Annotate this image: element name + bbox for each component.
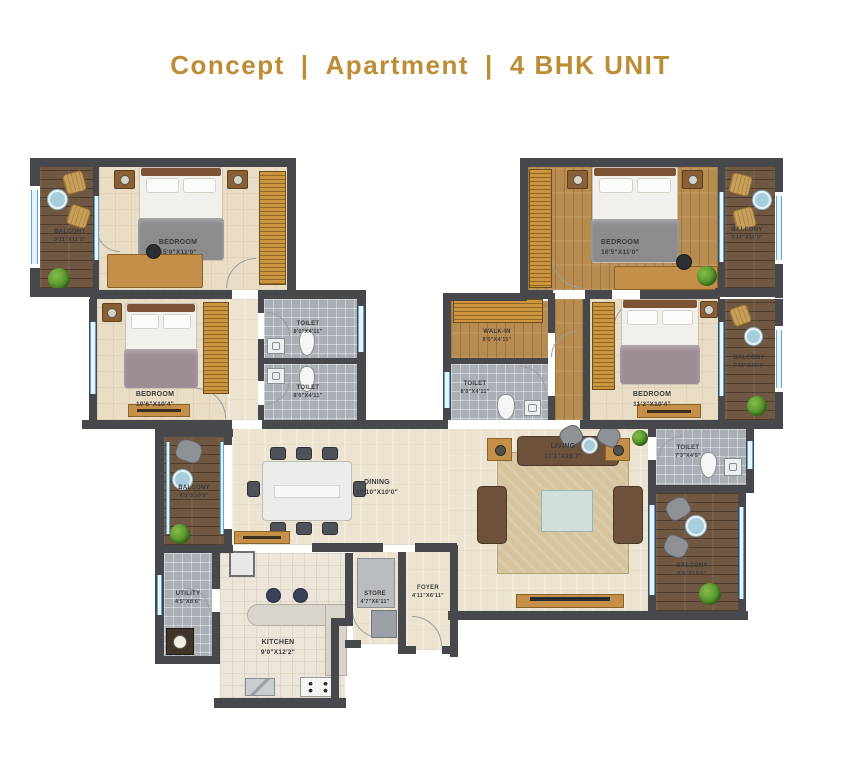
bed xyxy=(621,299,699,385)
wall xyxy=(155,545,233,553)
room-name: TOILET xyxy=(656,444,720,453)
room-dims: 11'2"X10'4" xyxy=(602,400,702,409)
room-dims: 8'0"X4'11" xyxy=(443,389,507,397)
room-name: LIVING xyxy=(513,442,613,452)
label-toilet-4: TOILET7'3"X4'5" xyxy=(656,444,720,461)
room-dims: 3'11"X10'4" xyxy=(720,363,778,371)
wall xyxy=(262,358,357,364)
wall xyxy=(640,290,720,299)
side-table xyxy=(487,438,512,461)
wall xyxy=(450,545,458,657)
room-name: BEDROOM xyxy=(570,238,670,248)
label-kitchen: KITCHEN9'0"X12'2" xyxy=(228,638,328,658)
title-separator: | xyxy=(301,50,310,80)
window xyxy=(739,507,744,599)
desk xyxy=(107,254,203,288)
wall xyxy=(90,290,232,299)
nightstand xyxy=(700,301,718,318)
room-dims: 3'11"X11'0" xyxy=(40,237,100,245)
pillow xyxy=(627,310,658,325)
wall xyxy=(287,158,296,299)
title-brand: Concept xyxy=(170,50,285,80)
service-duct xyxy=(371,610,397,638)
bed-headboard xyxy=(623,300,697,308)
label-balcony-left: BALCONY4'5"X10'0" xyxy=(164,484,224,501)
pillow xyxy=(183,178,216,193)
nightstand xyxy=(114,170,135,189)
room-dims: 4'5"X10'0" xyxy=(164,493,224,501)
sink xyxy=(524,400,541,416)
room-dims: 8'0"X4'11" xyxy=(447,337,547,345)
room-name: BALCONY xyxy=(40,228,100,237)
pillow xyxy=(131,314,160,329)
wall xyxy=(580,420,783,429)
refrigerator xyxy=(229,551,255,577)
label-master-bedroom: BEDROOM16'5"X11'0" xyxy=(570,238,670,258)
title-unit: 4 BHK UNIT xyxy=(510,50,671,80)
plant xyxy=(747,396,767,416)
room-name: WALK-IN xyxy=(447,328,547,337)
bed-blanket xyxy=(124,349,198,388)
room-dims: 8'0"X4'11" xyxy=(267,329,349,337)
corridor-left xyxy=(228,299,258,420)
room-dims: 17'1"X15'7" xyxy=(513,452,613,461)
window xyxy=(649,505,655,595)
room-dims: 4'11"X6'11" xyxy=(398,593,458,601)
wall xyxy=(258,405,264,420)
dining-chair xyxy=(322,522,338,535)
room-dims: 4'5"X8'6" xyxy=(158,599,218,607)
sink xyxy=(267,368,285,384)
wall xyxy=(262,420,448,429)
wall xyxy=(345,640,361,648)
wall xyxy=(155,429,233,437)
armchair xyxy=(613,486,643,544)
window xyxy=(747,441,753,469)
plant xyxy=(697,266,717,286)
dining-chair xyxy=(247,481,260,497)
wardrobe xyxy=(592,302,615,390)
wall xyxy=(398,646,416,654)
room-name: BALCONY xyxy=(716,226,778,235)
wall xyxy=(715,288,783,297)
bed-headboard xyxy=(594,168,676,176)
round-table xyxy=(745,328,762,345)
wall xyxy=(583,299,590,420)
window xyxy=(90,322,96,394)
wall xyxy=(448,611,748,620)
label-balcony-top-right: BALCONY3'11"X11'0" xyxy=(716,226,778,243)
room-dims: 19'10"X10'0" xyxy=(327,488,427,497)
wall xyxy=(30,158,40,186)
wall xyxy=(648,460,656,493)
wall xyxy=(585,290,612,299)
label-balcony-right: BALCONY3'11"X10'4" xyxy=(720,354,778,371)
room-name: BEDROOM xyxy=(105,390,205,400)
utility-sink xyxy=(166,628,194,655)
room-name: DINING xyxy=(327,478,427,488)
wall xyxy=(345,553,353,625)
wall xyxy=(258,299,264,313)
nightstand xyxy=(102,303,122,322)
label-toilet-2: TOILET8'0"X4'11" xyxy=(267,384,349,401)
wardrobe xyxy=(529,169,552,288)
room-dims: 8'0"X4'11" xyxy=(267,393,349,401)
room-name: KITCHEN xyxy=(228,638,328,648)
room-dims: 7'3"X4'5" xyxy=(656,453,720,461)
label-living: LIVING17'1"X15'7" xyxy=(513,442,613,462)
room-dims: 16'5"X11'0" xyxy=(570,248,670,257)
round-table xyxy=(753,191,771,209)
room-dims: 9'0"X12'2" xyxy=(228,648,328,657)
bed-headboard xyxy=(127,304,195,312)
dining-chair xyxy=(270,447,286,460)
wall xyxy=(648,485,754,493)
room-name: TOILET xyxy=(267,384,349,393)
wall xyxy=(312,543,383,552)
title-separator: | xyxy=(485,50,494,80)
bar-stool xyxy=(266,588,281,603)
plant xyxy=(170,524,190,544)
wardrobe xyxy=(453,299,543,323)
plant xyxy=(48,268,70,290)
wall xyxy=(775,158,783,192)
sink xyxy=(267,338,285,354)
nightstand xyxy=(682,170,703,189)
sideboard xyxy=(234,531,290,544)
armchair xyxy=(477,486,507,544)
wall xyxy=(224,429,232,445)
pillow xyxy=(163,314,192,329)
bed xyxy=(125,303,197,389)
wardrobe xyxy=(259,171,286,285)
room-dims: 15'9"X11'0" xyxy=(128,248,228,257)
label-bedroom-2: BEDROOM10'6"X10'4" xyxy=(105,390,205,410)
pillow xyxy=(146,178,179,193)
wall xyxy=(224,529,232,553)
coffee-table xyxy=(541,490,593,532)
wall xyxy=(520,158,528,299)
wall xyxy=(258,290,366,299)
room-name: BEDROOM xyxy=(128,238,228,248)
dining-chair xyxy=(296,522,312,535)
nightstand xyxy=(567,170,588,189)
label-store: STORE4'7"X6'11" xyxy=(344,590,406,607)
round-table xyxy=(48,190,67,209)
tv-console xyxy=(516,594,624,608)
title-category: Apartment xyxy=(326,50,470,80)
plant xyxy=(632,430,648,446)
bar-stool xyxy=(293,588,308,603)
plant xyxy=(699,583,721,605)
wall xyxy=(212,553,220,589)
wall xyxy=(30,288,97,297)
room-dims: 3'11"X11'0" xyxy=(716,235,778,243)
wall xyxy=(82,420,232,429)
wall xyxy=(214,698,346,708)
pillow xyxy=(662,310,693,325)
room-name: FOYER xyxy=(398,584,458,593)
desk-chair xyxy=(676,254,692,270)
room-name: BALCONY xyxy=(656,562,728,571)
label-bedroom-1: BEDROOM15'9"X11'0" xyxy=(128,238,228,258)
label-foyer: FOYER4'11"X6'11" xyxy=(398,584,458,601)
wall xyxy=(548,293,555,333)
label-bedroom-3: BEDROOM11'2"X10'4" xyxy=(602,390,702,410)
label-utility: UTILITY4'5"X8'6" xyxy=(158,590,218,607)
wall xyxy=(331,618,353,626)
room-name: TOILET xyxy=(443,380,507,389)
room-name: BEDROOM xyxy=(602,390,702,400)
floor-plan-page: Concept|Apartment|4 BHK UNIT xyxy=(0,0,841,768)
window xyxy=(31,190,38,264)
pillow xyxy=(637,178,671,193)
label-dining: DINING19'10"X10'0" xyxy=(327,478,427,498)
round-table xyxy=(686,516,706,536)
corridor-master xyxy=(555,299,583,420)
dining-chair xyxy=(296,447,312,460)
window xyxy=(358,306,364,352)
label-balcony-bottom-right: BALCONY5'5"X10'6" xyxy=(656,562,728,579)
wall xyxy=(331,626,339,704)
wall xyxy=(443,293,527,301)
dining-chair xyxy=(322,447,338,460)
room-name: BALCONY xyxy=(164,484,224,493)
room-name: STORE xyxy=(344,590,406,599)
wall xyxy=(523,158,783,167)
wall xyxy=(775,299,783,326)
wall xyxy=(443,358,548,364)
wall xyxy=(548,396,555,420)
wardrobe xyxy=(203,302,229,394)
page-title: Concept|Apartment|4 BHK UNIT xyxy=(0,50,841,81)
label-balcony-top-left: BALCONY3'11"X11'0" xyxy=(40,228,100,245)
label-toilet-1: TOILET8'0"X4'11" xyxy=(267,320,349,337)
wall xyxy=(648,429,656,437)
label-walk-in: WALK-IN8'0"X4'11" xyxy=(447,328,547,345)
room-name: BALCONY xyxy=(720,354,778,363)
wall xyxy=(442,646,454,654)
wall xyxy=(30,158,293,167)
label-toilet-3: TOILET8'0"X4'11" xyxy=(443,380,507,397)
room-dims: 5'5"X10'6" xyxy=(656,571,728,579)
wall xyxy=(775,392,783,429)
room-name: TOILET xyxy=(267,320,349,329)
room-dims: 10'6"X10'4" xyxy=(105,400,205,409)
bed-blanket xyxy=(620,345,700,384)
bed-headboard xyxy=(141,168,221,176)
sink xyxy=(724,458,742,476)
room-name: UTILITY xyxy=(158,590,218,599)
pillow xyxy=(599,178,633,193)
nightstand xyxy=(227,170,248,189)
wall xyxy=(155,656,217,664)
room-dims: 4'7"X6'11" xyxy=(344,599,406,607)
kitchen-sink xyxy=(245,678,275,696)
